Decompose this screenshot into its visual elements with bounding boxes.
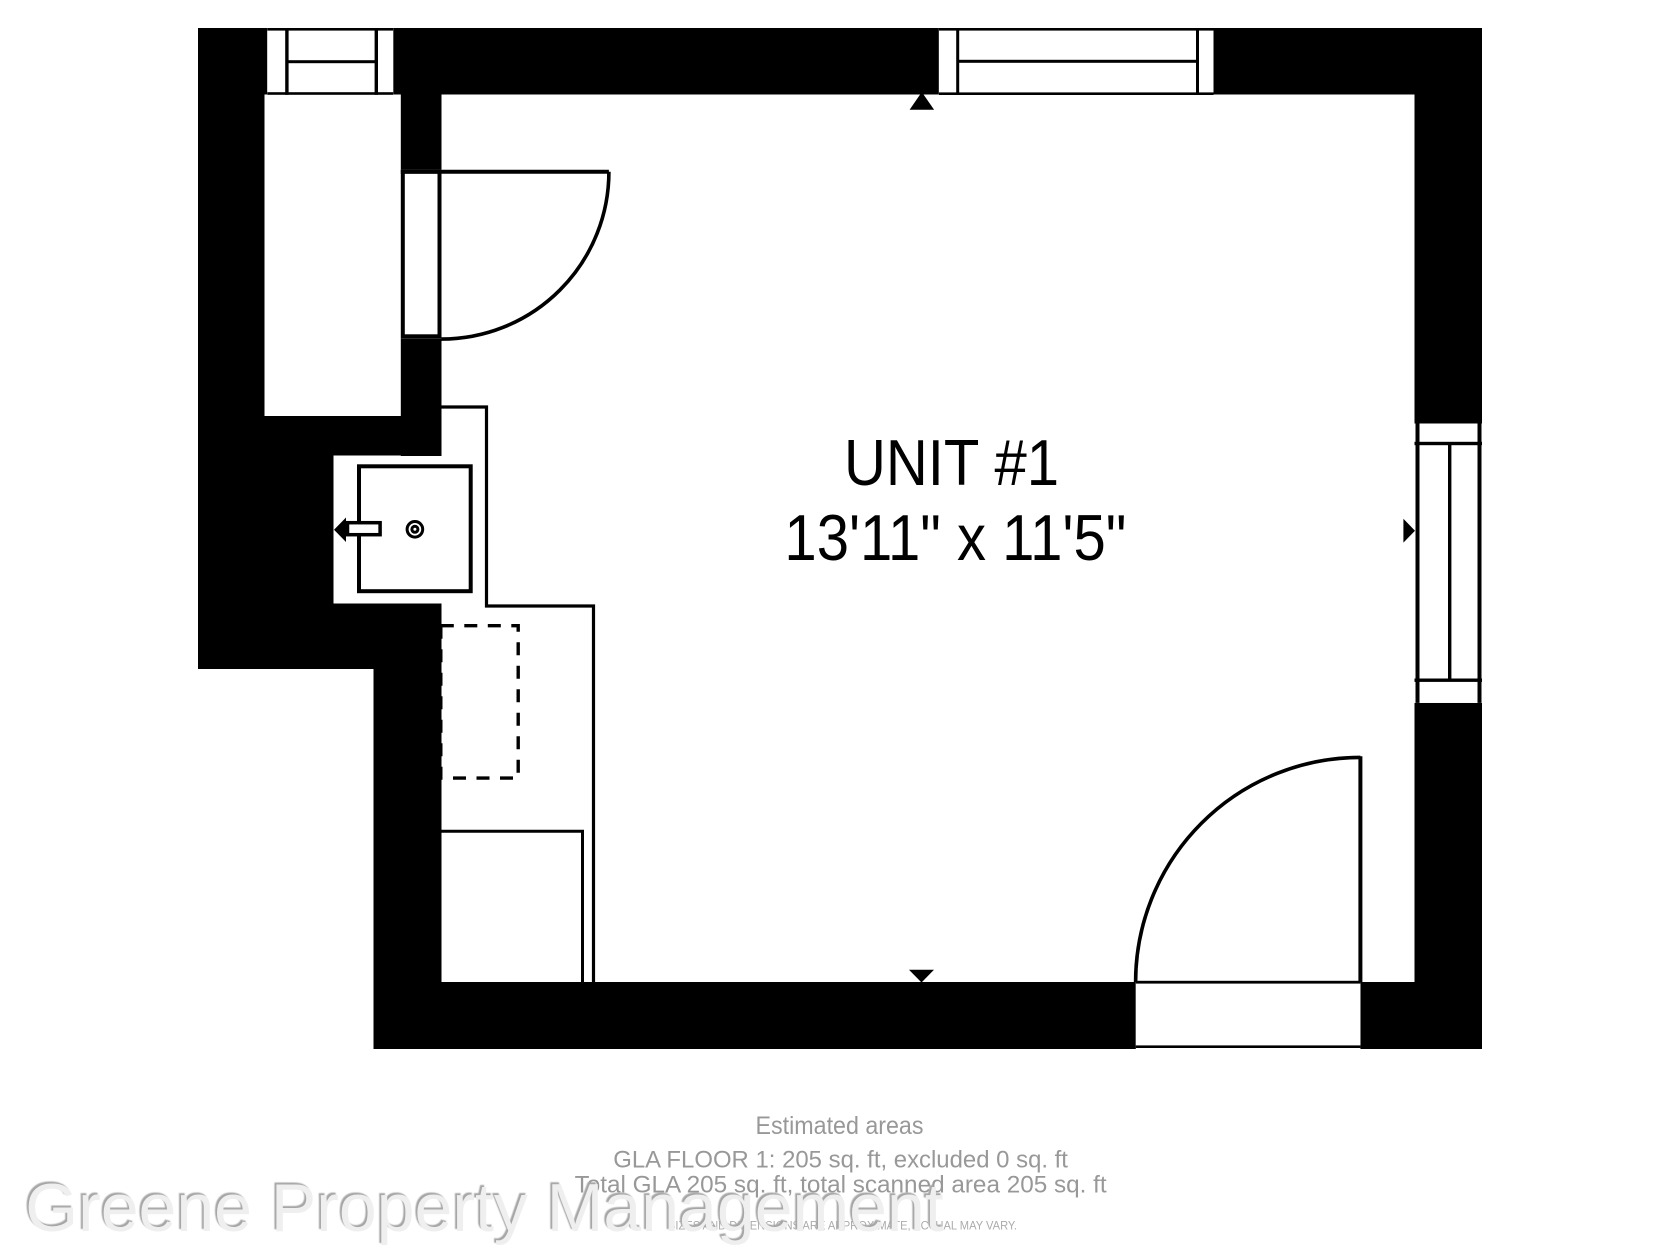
svg-text:Greene Property Management: Greene Property Management [25,1170,944,1246]
svg-text:UNIT #1: UNIT #1 [844,427,1059,500]
svg-text:Estimated areas: Estimated areas [756,1112,924,1140]
svg-text:13'11" x 11'5": 13'11" x 11'5" [784,502,1126,575]
